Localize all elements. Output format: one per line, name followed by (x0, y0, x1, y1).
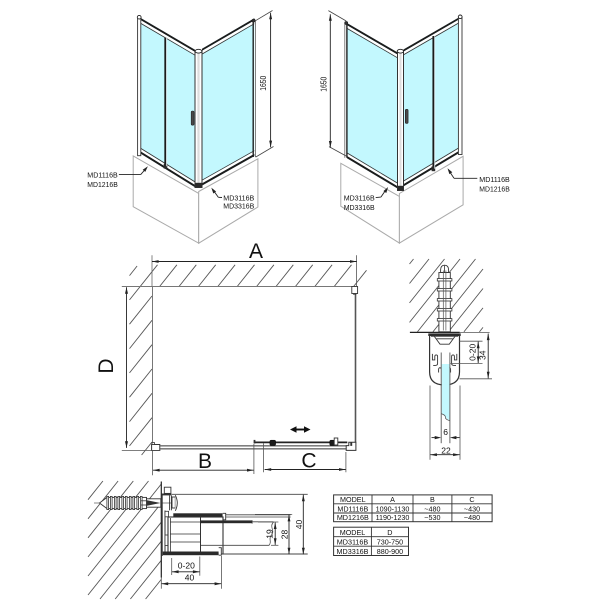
svg-text:MD3116B: MD3116B (337, 537, 369, 546)
svg-text:MD3116B: MD3116B (344, 194, 375, 203)
svg-text:MODEL: MODEL (340, 495, 366, 504)
svg-text:C: C (301, 450, 316, 473)
svg-text:MD1116B: MD1116B (337, 504, 368, 513)
svg-text:6: 6 (443, 427, 448, 437)
svg-text:MD1116B: MD1116B (479, 175, 510, 184)
svg-text:MODEL: MODEL (340, 528, 366, 537)
svg-text:1650: 1650 (258, 75, 268, 90)
svg-text:880-900: 880-900 (377, 547, 403, 556)
svg-text:MD3316B: MD3316B (223, 202, 254, 211)
svg-text:~480: ~480 (464, 513, 480, 522)
svg-text:C: C (469, 495, 474, 504)
svg-text:22: 22 (441, 446, 451, 456)
svg-text:MD1216B: MD1216B (337, 513, 369, 522)
svg-text:28: 28 (279, 530, 289, 540)
svg-text:A: A (390, 495, 395, 504)
svg-text:MD3316B: MD3316B (337, 547, 369, 556)
svg-text:730-750: 730-750 (377, 537, 403, 546)
svg-text:40: 40 (185, 573, 195, 583)
svg-text:0-20: 0-20 (467, 344, 477, 361)
svg-text:1090-1130: 1090-1130 (376, 504, 410, 513)
svg-text:19: 19 (265, 529, 275, 539)
svg-text:B: B (430, 495, 435, 504)
svg-text:~530: ~530 (424, 513, 440, 522)
svg-text:MD1116B: MD1116B (87, 171, 118, 180)
svg-text:40: 40 (294, 520, 304, 530)
svg-text:D: D (95, 358, 118, 373)
svg-text:~480: ~480 (424, 504, 440, 513)
svg-text:1650: 1650 (319, 76, 329, 91)
svg-text:MD3316B: MD3316B (344, 203, 375, 212)
svg-text:34: 34 (478, 350, 488, 360)
svg-text:D: D (387, 528, 392, 537)
svg-text:MD1216B: MD1216B (479, 184, 510, 193)
svg-text:~430: ~430 (464, 504, 480, 513)
svg-text:1190-1230: 1190-1230 (376, 513, 410, 522)
svg-text:A: A (249, 240, 263, 263)
svg-text:MD1216B: MD1216B (87, 180, 118, 189)
svg-text:0-20: 0-20 (178, 560, 195, 570)
svg-text:B: B (198, 450, 212, 473)
